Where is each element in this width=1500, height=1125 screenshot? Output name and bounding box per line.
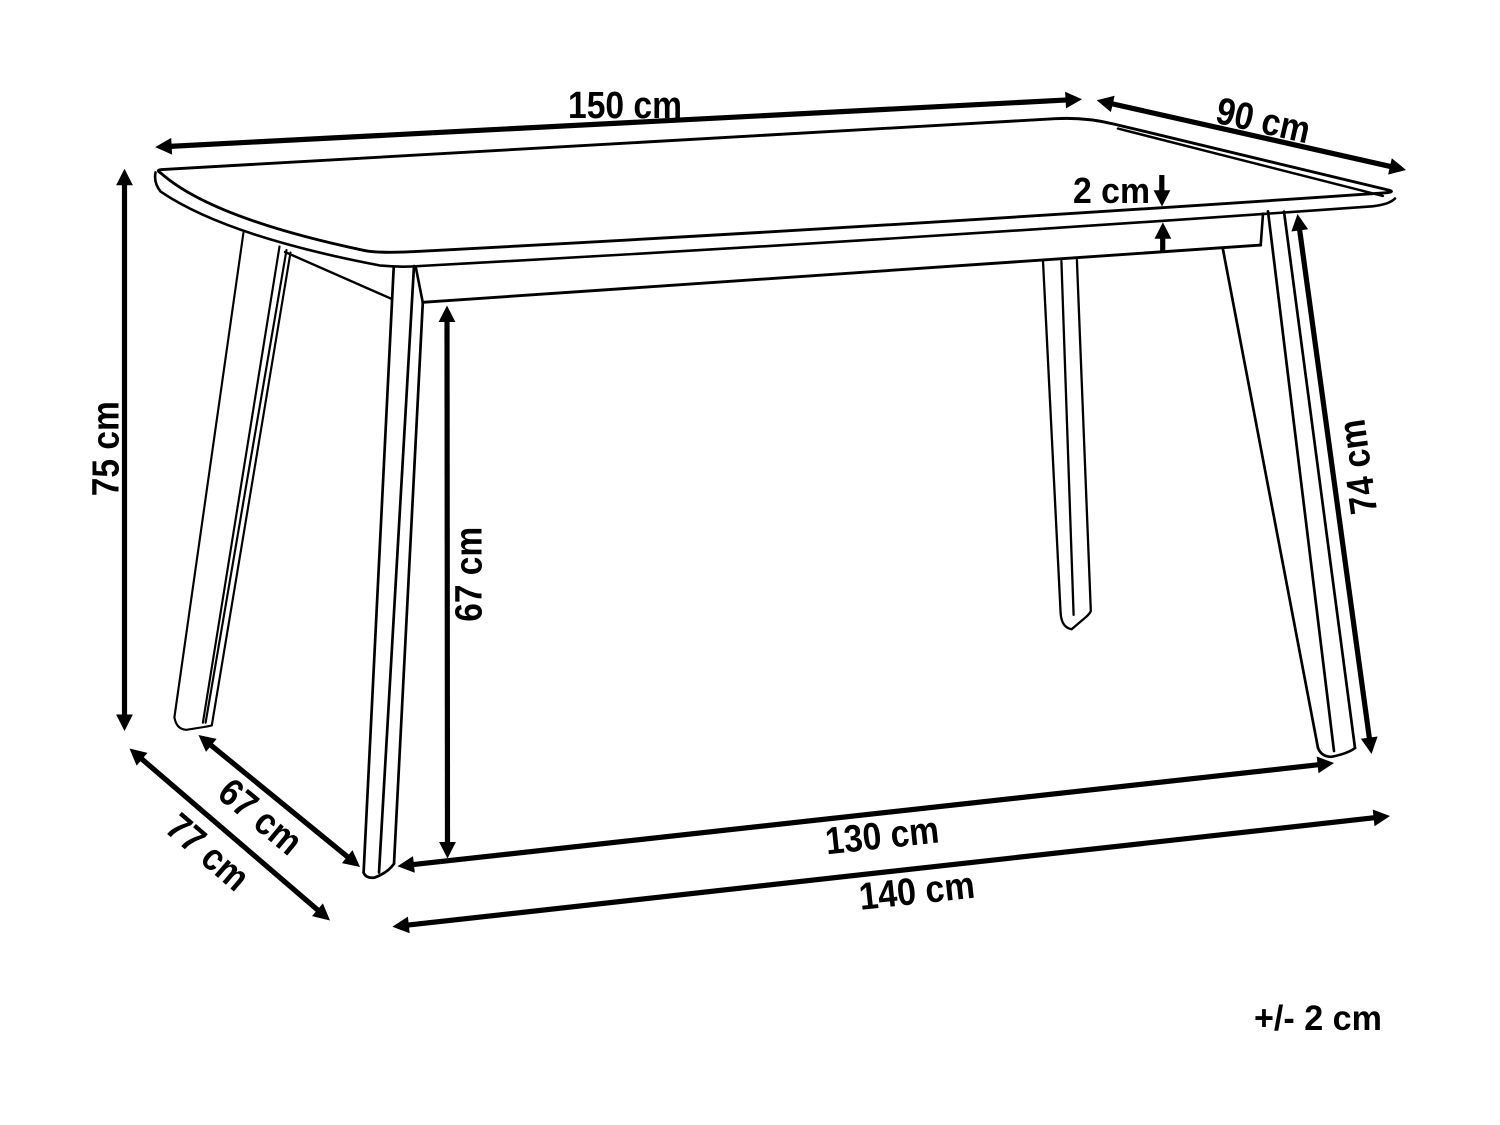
svg-text:+/- 2 cm: +/- 2 cm [1254, 998, 1382, 1038]
svg-text:150 cm: 150 cm [568, 84, 682, 127]
svg-text:67 cm: 67 cm [447, 527, 490, 622]
svg-text:2 cm: 2 cm [1073, 170, 1150, 211]
svg-text:75 cm: 75 cm [84, 401, 127, 496]
